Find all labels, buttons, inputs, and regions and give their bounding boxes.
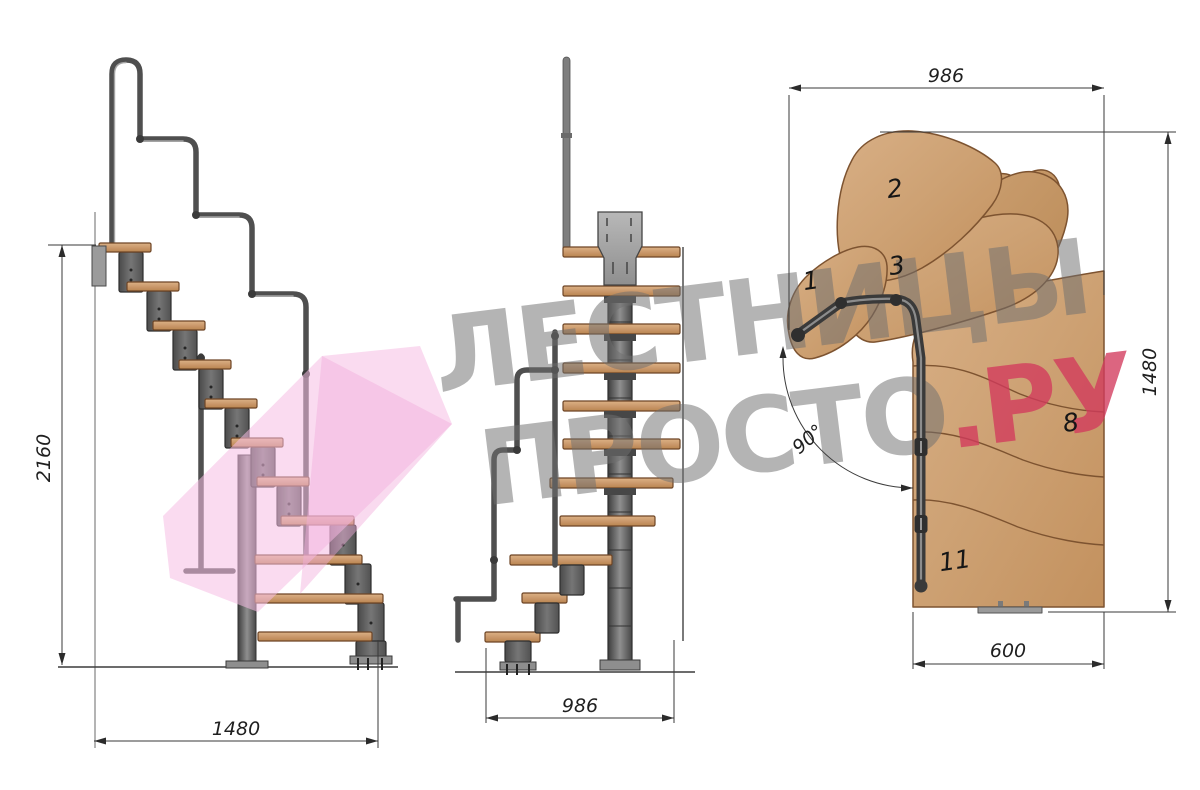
step-number-11: 11 <box>937 544 973 577</box>
rail-bottom-cap <box>915 580 928 593</box>
support-base-plate <box>226 661 268 668</box>
dim-plan-depth: 1480 <box>1139 348 1161 396</box>
wall-bracket <box>92 246 106 286</box>
module-base-plate <box>350 656 392 664</box>
dim-front-width: 986 <box>562 695 598 717</box>
pole-joint <box>561 133 572 138</box>
rail-knob <box>835 297 847 309</box>
drawing-canvas: ЛЕСТНИЦЫ ПРОСТО .РУ <box>0 0 1200 790</box>
technical-drawing: ЛЕСТНИЦЫ ПРОСТО .РУ <box>0 0 1200 790</box>
floor-mount-plate <box>978 607 1042 613</box>
front-lower-modules <box>505 565 584 662</box>
dim-plan-width: 986 <box>928 65 964 87</box>
dim-side-width: 1480 <box>212 718 260 740</box>
rail-end-ball <box>791 328 805 342</box>
column-base-plate <box>600 660 640 670</box>
rail-clamps <box>136 135 310 378</box>
watermark-suffix: .РУ <box>939 329 1140 473</box>
dim-side-height: 2160 <box>33 434 55 482</box>
rail-knob <box>890 294 902 306</box>
dim-plan-flight-width: 600 <box>990 640 1026 662</box>
rail-pole <box>563 57 570 253</box>
